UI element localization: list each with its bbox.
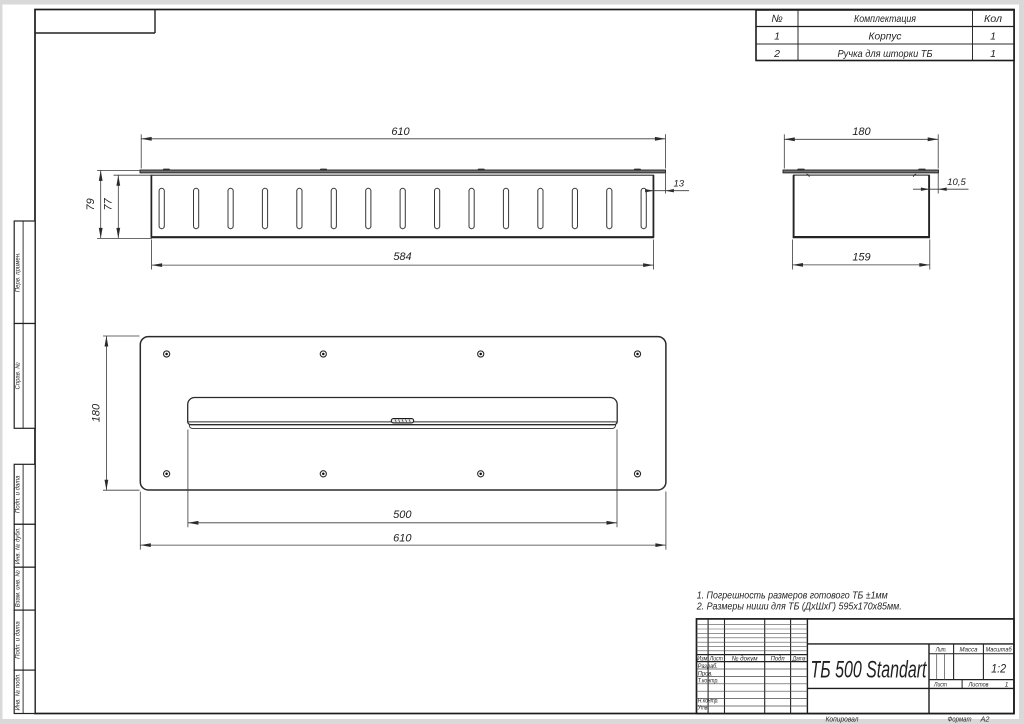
- svg-text:Листов: Листов: [968, 681, 989, 688]
- svg-text:Подп. и дата: Подп. и дата: [16, 475, 22, 513]
- svg-text:Масштаб: Масштаб: [986, 645, 1012, 653]
- svg-text:77: 77: [103, 197, 115, 210]
- svg-text:А2: А2: [980, 715, 991, 724]
- svg-text:180: 180: [91, 403, 103, 422]
- svg-text:Изм: Изм: [697, 655, 707, 662]
- svg-text:1: 1: [990, 48, 996, 60]
- svg-text:1: 1: [1005, 681, 1009, 688]
- svg-text:Пров.: Пров.: [698, 670, 713, 677]
- svg-text:Подп: Подп: [771, 654, 785, 662]
- svg-text:Формат: Формат: [948, 715, 972, 724]
- svg-text:Инв. № подл.: Инв. № подл.: [15, 673, 22, 710]
- svg-text:584: 584: [393, 251, 411, 263]
- svg-text:Лист: Лист: [933, 681, 947, 688]
- svg-text:Инв. № дубл.: Инв. № дубл.: [15, 527, 22, 564]
- svg-text:Кол: Кол: [984, 13, 1002, 25]
- svg-text:180: 180: [852, 126, 871, 138]
- svg-text:13: 13: [674, 179, 685, 190]
- svg-text:Н.контр.: Н.контр.: [698, 697, 719, 704]
- svg-text:Подп. и дата: Подп. и дата: [16, 621, 22, 659]
- svg-text:№ докум: № докум: [732, 654, 759, 662]
- svg-text:Утв.: Утв.: [697, 705, 709, 712]
- svg-text:Дата: Дата: [792, 655, 806, 662]
- svg-text:610: 610: [391, 126, 410, 138]
- svg-text:Разраб.: Разраб.: [698, 662, 718, 670]
- svg-text:Перв. примен.: Перв. примен.: [16, 252, 22, 292]
- svg-text:Комплектация: Комплектация: [854, 13, 916, 25]
- svg-text:Корпус: Корпус: [869, 31, 903, 43]
- svg-text:1: 1: [774, 31, 780, 43]
- svg-text:Копировал: Копировал: [826, 715, 860, 724]
- svg-text:79: 79: [85, 198, 97, 210]
- svg-text:1:2: 1:2: [991, 661, 1006, 675]
- svg-text:Т.контр.: Т.контр.: [698, 678, 719, 685]
- svg-text:1: 1: [990, 31, 996, 43]
- svg-text:Взам. инв. №: Взам. инв. №: [15, 570, 22, 608]
- svg-text:Лит.: Лит.: [935, 646, 947, 653]
- svg-text:10,5: 10,5: [947, 177, 966, 188]
- svg-text:2. Размеры ниши для ТБ (ДхШхГ): 2. Размеры ниши для ТБ (ДхШхГ) 595х170х8…: [696, 600, 902, 612]
- svg-text:Ручка для шторки ТБ: Ручка для шторки ТБ: [838, 48, 933, 60]
- svg-text:Масса: Масса: [960, 646, 978, 653]
- svg-text:610: 610: [393, 532, 412, 544]
- svg-text:ТБ 500 Standart: ТБ 500 Standart: [811, 656, 928, 683]
- svg-text:Лист: Лист: [709, 655, 723, 662]
- svg-text:№: №: [771, 13, 782, 25]
- svg-text:159: 159: [852, 252, 870, 264]
- svg-text:500: 500: [393, 509, 412, 521]
- svg-text:Справ. №: Справ. №: [15, 362, 22, 390]
- svg-text:2: 2: [773, 48, 780, 60]
